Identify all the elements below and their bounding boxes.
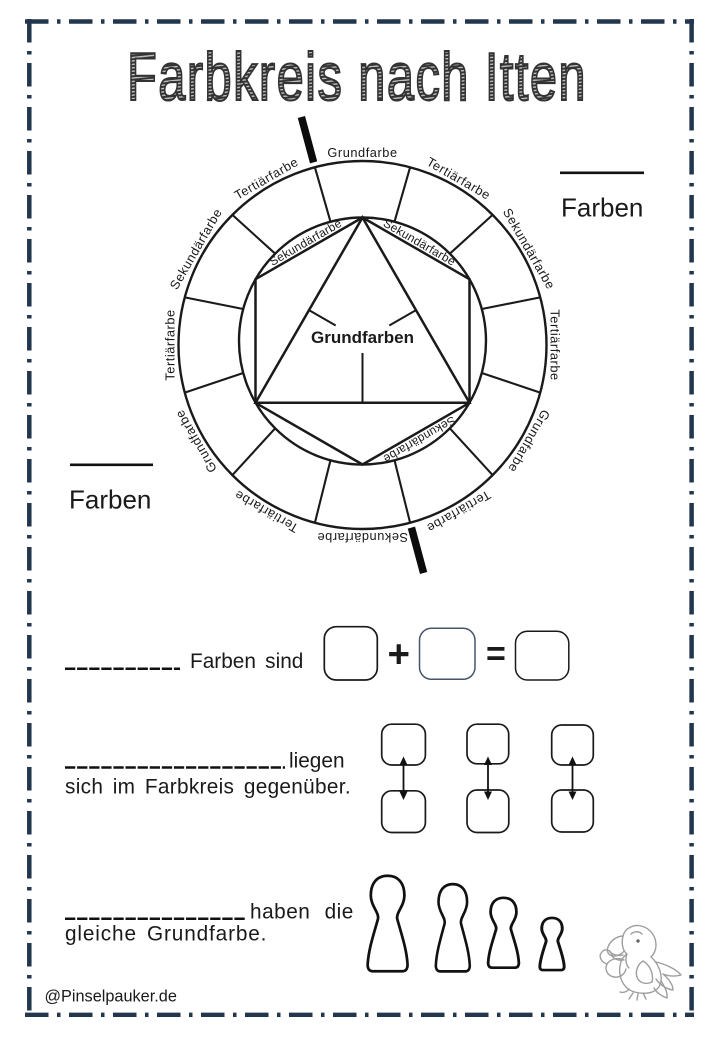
- svg-text:Farben: Farben: [561, 193, 643, 223]
- svg-text:Farben: Farben: [69, 485, 151, 515]
- svg-text:Tertiärfarbe: Tertiärfarbe: [163, 309, 178, 380]
- svg-text:+: +: [388, 633, 410, 676]
- svg-text:liegen: liegen: [289, 750, 345, 773]
- svg-text:=: =: [486, 635, 506, 673]
- svg-text:haben die: haben die: [250, 901, 354, 924]
- svg-text:@Pinselpauker.de: @Pinselpauker.de: [45, 988, 177, 1006]
- svg-text:Grundfarben: Grundfarben: [311, 328, 414, 347]
- svg-text:Farbkreis nach Itten: Farbkreis nach Itten: [127, 39, 587, 115]
- svg-text:Sekundärfarbe: Sekundärfarbe: [317, 530, 408, 545]
- svg-text:Farben sind: Farben sind: [190, 650, 303, 673]
- svg-text:sich im Farbkreis gegenüber.: sich im Farbkreis gegenüber.: [65, 776, 351, 799]
- svg-text:gleiche Grundfarbe.: gleiche Grundfarbe.: [65, 923, 267, 946]
- svg-text:Tertiärfarbe: Tertiärfarbe: [548, 309, 563, 380]
- svg-text:Grundfarbe: Grundfarbe: [327, 145, 397, 160]
